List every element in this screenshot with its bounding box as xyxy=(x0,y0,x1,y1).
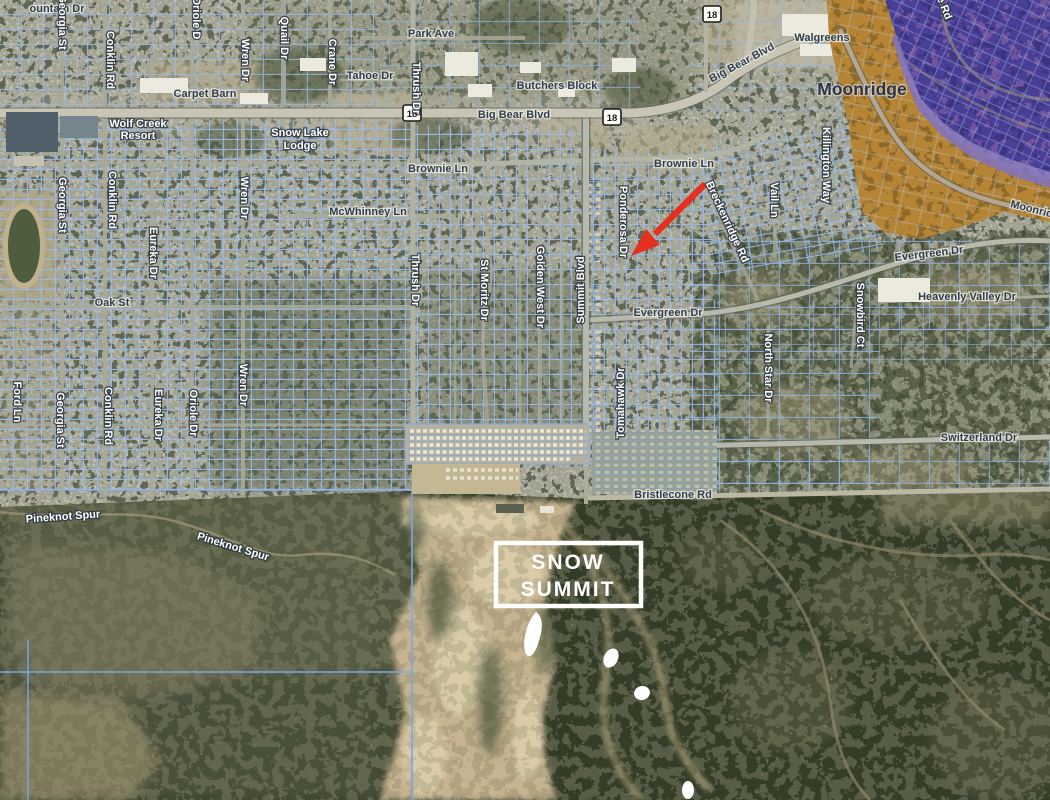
svg-text:Switzerland Dr: Switzerland Dr xyxy=(941,432,1018,444)
svg-text:Ford Ln: Ford Ln xyxy=(11,382,23,423)
svg-text:Wren Dr: Wren Dr xyxy=(238,177,250,220)
svg-text:18: 18 xyxy=(707,10,718,21)
svg-text:Heavenly Valley Dr: Heavenly Valley Dr xyxy=(918,291,1017,303)
svg-text:Conklin Rd: Conklin Rd xyxy=(104,31,116,89)
svg-text:Thrush Dr: Thrush Dr xyxy=(410,62,422,115)
svg-text:St Moritz Dr: St Moritz Dr xyxy=(478,259,490,321)
svg-text:Walgreens: Walgreens xyxy=(794,32,849,44)
svg-text:Quail Dr: Quail Dr xyxy=(278,17,290,61)
svg-text:Crane Dr: Crane Dr xyxy=(326,39,338,86)
svg-text:Snowbird Ct: Snowbird Ct xyxy=(854,283,866,348)
svg-text:18: 18 xyxy=(607,113,618,124)
svg-text:Oak St: Oak St xyxy=(95,297,130,309)
svg-text:Resort: Resort xyxy=(121,130,156,142)
svg-text:Thrush Dr: Thrush Dr xyxy=(409,254,421,307)
svg-text:Snow Lake: Snow Lake xyxy=(271,127,328,139)
svg-text:Oriole Dr: Oriole Dr xyxy=(187,389,199,437)
svg-text:Moonridge: Moonridge xyxy=(817,79,907,99)
svg-text:Butchers Block: Butchers Block xyxy=(517,80,599,92)
svg-text:Park Ave: Park Ave xyxy=(408,28,454,40)
svg-text:Big Bear Blvd: Big Bear Blvd xyxy=(478,109,550,121)
svg-text:Vail Ln: Vail Ln xyxy=(768,182,780,218)
svg-text:Lodge: Lodge xyxy=(284,140,317,152)
svg-text:Georgia St: Georgia St xyxy=(56,0,68,50)
svg-text:Conklin Rd: Conklin Rd xyxy=(102,387,114,445)
svg-text:Conklin Rd: Conklin Rd xyxy=(106,171,118,229)
svg-text:Oriole D: Oriole D xyxy=(190,0,202,39)
svg-text:Ponderosa Dr: Ponderosa Dr xyxy=(617,186,629,259)
svg-text:Bristlecone Rd: Bristlecone Rd xyxy=(634,489,712,501)
svg-text:SNOW: SNOW xyxy=(531,551,604,574)
svg-text:Tahoe Dr: Tahoe Dr xyxy=(347,70,395,82)
svg-text:Georgia St: Georgia St xyxy=(54,392,66,448)
svg-text:Evergreen Dr: Evergreen Dr xyxy=(633,307,703,319)
svg-text:North Star Dr: North Star Dr xyxy=(762,333,774,403)
svg-text:Eureka Dr: Eureka Dr xyxy=(152,389,164,442)
svg-text:Wren Dr: Wren Dr xyxy=(237,364,249,407)
svg-text:Brownie Ln: Brownie Ln xyxy=(654,158,714,170)
svg-text:SUMMIT: SUMMIT xyxy=(521,578,616,601)
svg-text:Wren Dr: Wren Dr xyxy=(239,39,251,82)
svg-text:Summit Blvd: Summit Blvd xyxy=(575,256,587,323)
svg-text:Eureka Dr: Eureka Dr xyxy=(147,227,159,280)
svg-text:Georgia St: Georgia St xyxy=(56,177,68,233)
svg-text:Carpet Barn: Carpet Barn xyxy=(174,88,237,100)
svg-text:Brownie Ln: Brownie Ln xyxy=(408,163,468,175)
svg-text:Wolf Creek: Wolf Creek xyxy=(109,118,167,130)
svg-text:McWhinney Ln: McWhinney Ln xyxy=(329,206,407,218)
svg-text:Tomahawk Dr: Tomahawk Dr xyxy=(615,367,627,439)
svg-text:Golden West Dr: Golden West Dr xyxy=(534,246,546,329)
svg-text:Killington Way: Killington Way xyxy=(820,127,832,204)
